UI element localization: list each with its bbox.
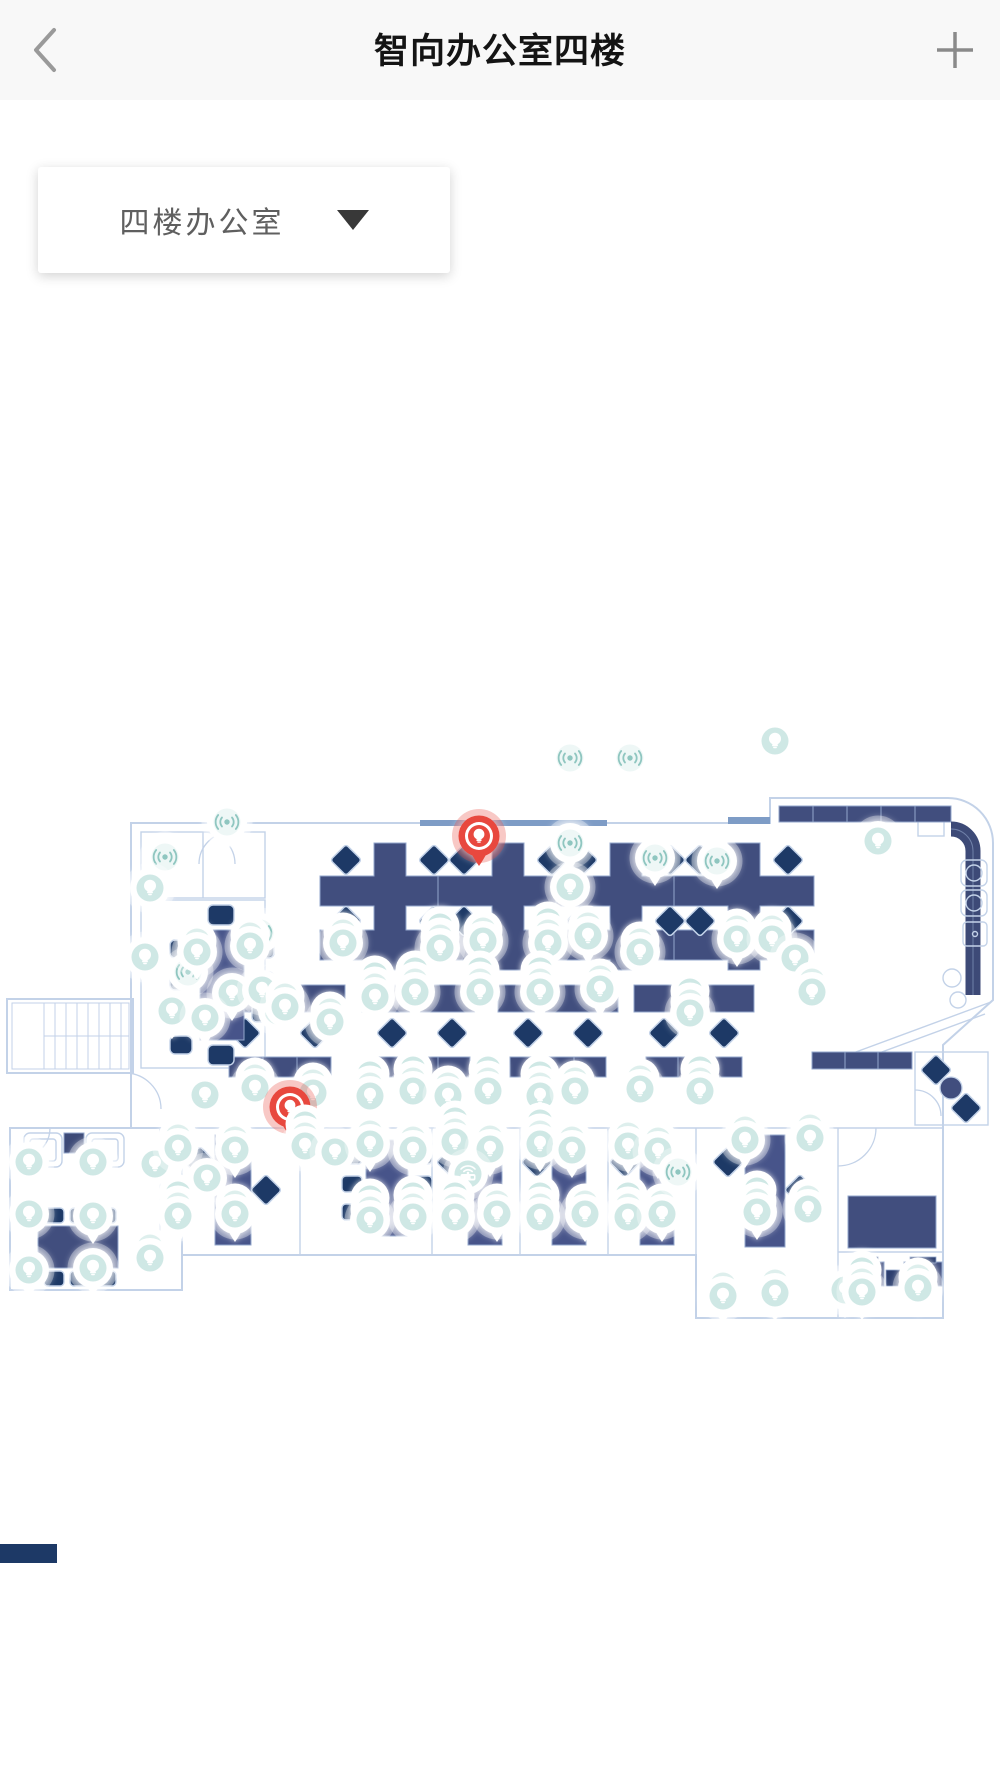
map-fragment [0,1544,57,1563]
top-wall-door [728,817,770,824]
bulb-device-pin[interactable] [125,863,176,917]
bulb-device-pin[interactable] [750,1263,801,1322]
app-screen: 智向办公室四楼 四楼办公室 [0,0,1000,1778]
header-bar: 智向办公室四楼 [0,0,1000,100]
bulb-device-pin[interactable] [68,1243,119,1297]
caret-down-icon [337,210,369,230]
bulb-device-pin[interactable] [4,1137,55,1191]
signal-device-pin[interactable] [605,733,656,787]
page-title: 智向办公室四楼 [0,0,1000,100]
map-area[interactable] [0,680,1000,1328]
floor-selector-value: 四楼办公室 [120,198,285,242]
bulb-device-pin[interactable] [698,1266,749,1325]
stairs [44,1003,129,1069]
bulb-device-pin[interactable] [837,1251,888,1321]
bulb-device-pin[interactable] [665,972,716,1042]
plus-icon [933,28,977,72]
bulb-device-pin[interactable] [853,816,904,870]
bulb-device-pin[interactable] [785,1108,836,1167]
add-button[interactable] [910,0,1000,100]
bulb-device-pin[interactable] [120,932,171,986]
signal-device-pin[interactable] [545,733,596,787]
bulb-device-pin[interactable] [750,716,801,770]
floor-selector-dropdown[interactable]: 四楼办公室 [38,167,450,273]
bulb-device-pin[interactable] [68,1137,119,1191]
bulb-device-pin[interactable] [180,1070,231,1124]
signal-device-pin[interactable] [202,797,253,851]
table-private-office [848,1196,936,1248]
floor-plan-map [0,680,1000,1328]
